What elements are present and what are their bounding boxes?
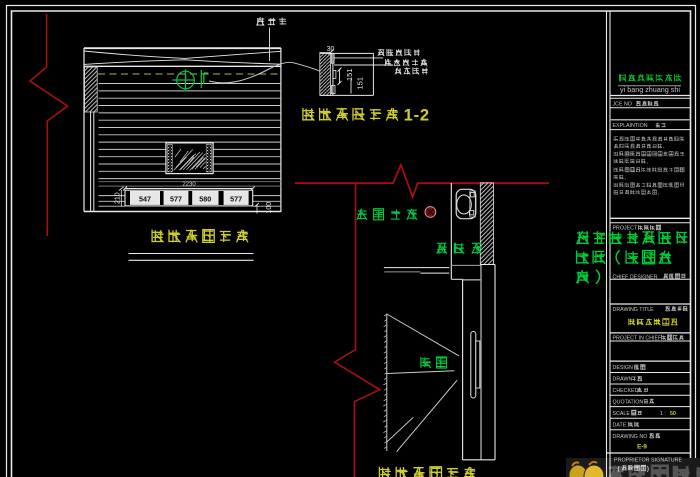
svg-text:577: 577 — [170, 194, 182, 203]
svg-text:151: 151 — [356, 77, 365, 90]
svg-text:2230: 2230 — [182, 182, 196, 188]
svg-text:210: 210 — [115, 192, 122, 204]
svg-text:QUOTATION: QUOTATION — [613, 399, 644, 405]
svg-text:1 :: 1 : — [660, 411, 666, 417]
svg-text:50: 50 — [670, 411, 676, 417]
svg-text:DESIGN: DESIGN — [613, 365, 633, 371]
svg-text:CHIEF DESIGNER: CHIEF DESIGNER — [613, 274, 658, 280]
svg-text:547: 547 — [139, 194, 151, 203]
svg-text:100: 100 — [266, 202, 273, 214]
svg-text:DRAWING TITLE: DRAWING TITLE — [613, 307, 655, 313]
svg-text:yi bang zhuang shi: yi bang zhuang shi — [620, 85, 680, 94]
svg-text:DRAWN: DRAWN — [613, 377, 633, 383]
svg-text:151: 151 — [345, 68, 354, 81]
svg-text:580: 580 — [199, 194, 211, 203]
svg-text:): ) — [647, 465, 649, 472]
svg-text:E-9: E-9 — [637, 443, 647, 450]
svg-text:PROJECT IN CHIEF: PROJECT IN CHIEF — [613, 336, 663, 342]
svg-text:1-2: 1-2 — [404, 107, 430, 125]
svg-text:PROJECT: PROJECT — [613, 226, 638, 232]
svg-text:EXPLAINTION: EXPLAINTION — [613, 123, 648, 129]
svg-text:577: 577 — [230, 194, 242, 203]
svg-text:DRAWING NO: DRAWING NO — [613, 434, 648, 440]
svg-text:PROPRIETOR SIGNATURE: PROPRIETOR SIGNATURE — [614, 457, 682, 463]
svg-text:DATE: DATE — [613, 423, 627, 429]
svg-text:CHECKED: CHECKED — [613, 388, 639, 394]
svg-text:30: 30 — [327, 46, 335, 53]
svg-text:SCALE: SCALE — [613, 411, 631, 417]
svg-text:JCE NO: JCE NO — [613, 102, 632, 108]
